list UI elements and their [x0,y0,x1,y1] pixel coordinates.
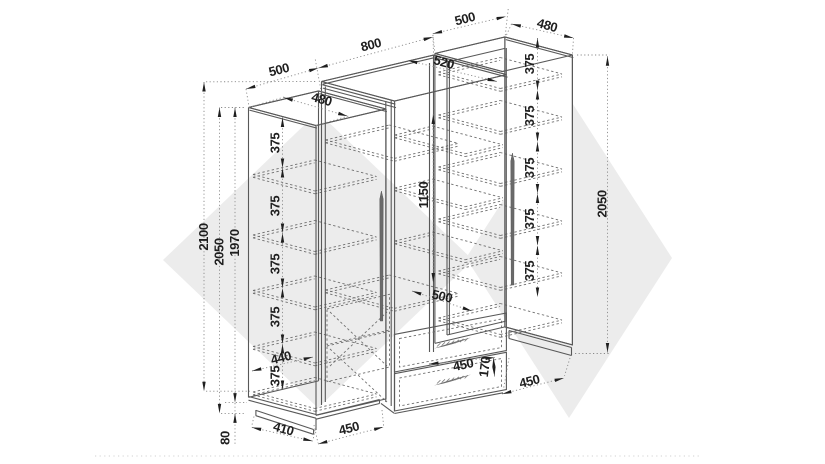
svg-text:375: 375 [522,261,537,282]
svg-text:450: 450 [518,371,542,391]
svg-text:80: 80 [218,431,233,445]
svg-text:450: 450 [451,355,474,374]
svg-text:375: 375 [522,54,537,75]
svg-text:170: 170 [476,356,493,378]
svg-text:450: 450 [337,418,361,438]
svg-text:375: 375 [268,133,283,154]
svg-text:375: 375 [268,366,283,387]
svg-text:375: 375 [268,254,283,275]
svg-text:2100: 2100 [196,223,211,250]
svg-text:410: 410 [272,419,296,439]
svg-text:375: 375 [268,307,283,328]
svg-text:2050: 2050 [212,238,227,265]
svg-text:480: 480 [535,15,559,35]
svg-text:375: 375 [522,106,537,127]
svg-text:1150: 1150 [416,182,431,209]
svg-text:800: 800 [359,35,383,55]
svg-text:500: 500 [453,9,477,29]
svg-text:500: 500 [267,60,291,80]
svg-text:2050: 2050 [595,190,610,217]
svg-text:375: 375 [268,196,283,217]
svg-text:375: 375 [522,158,537,179]
svg-text:375: 375 [522,209,537,230]
svg-text:1970: 1970 [227,229,242,256]
